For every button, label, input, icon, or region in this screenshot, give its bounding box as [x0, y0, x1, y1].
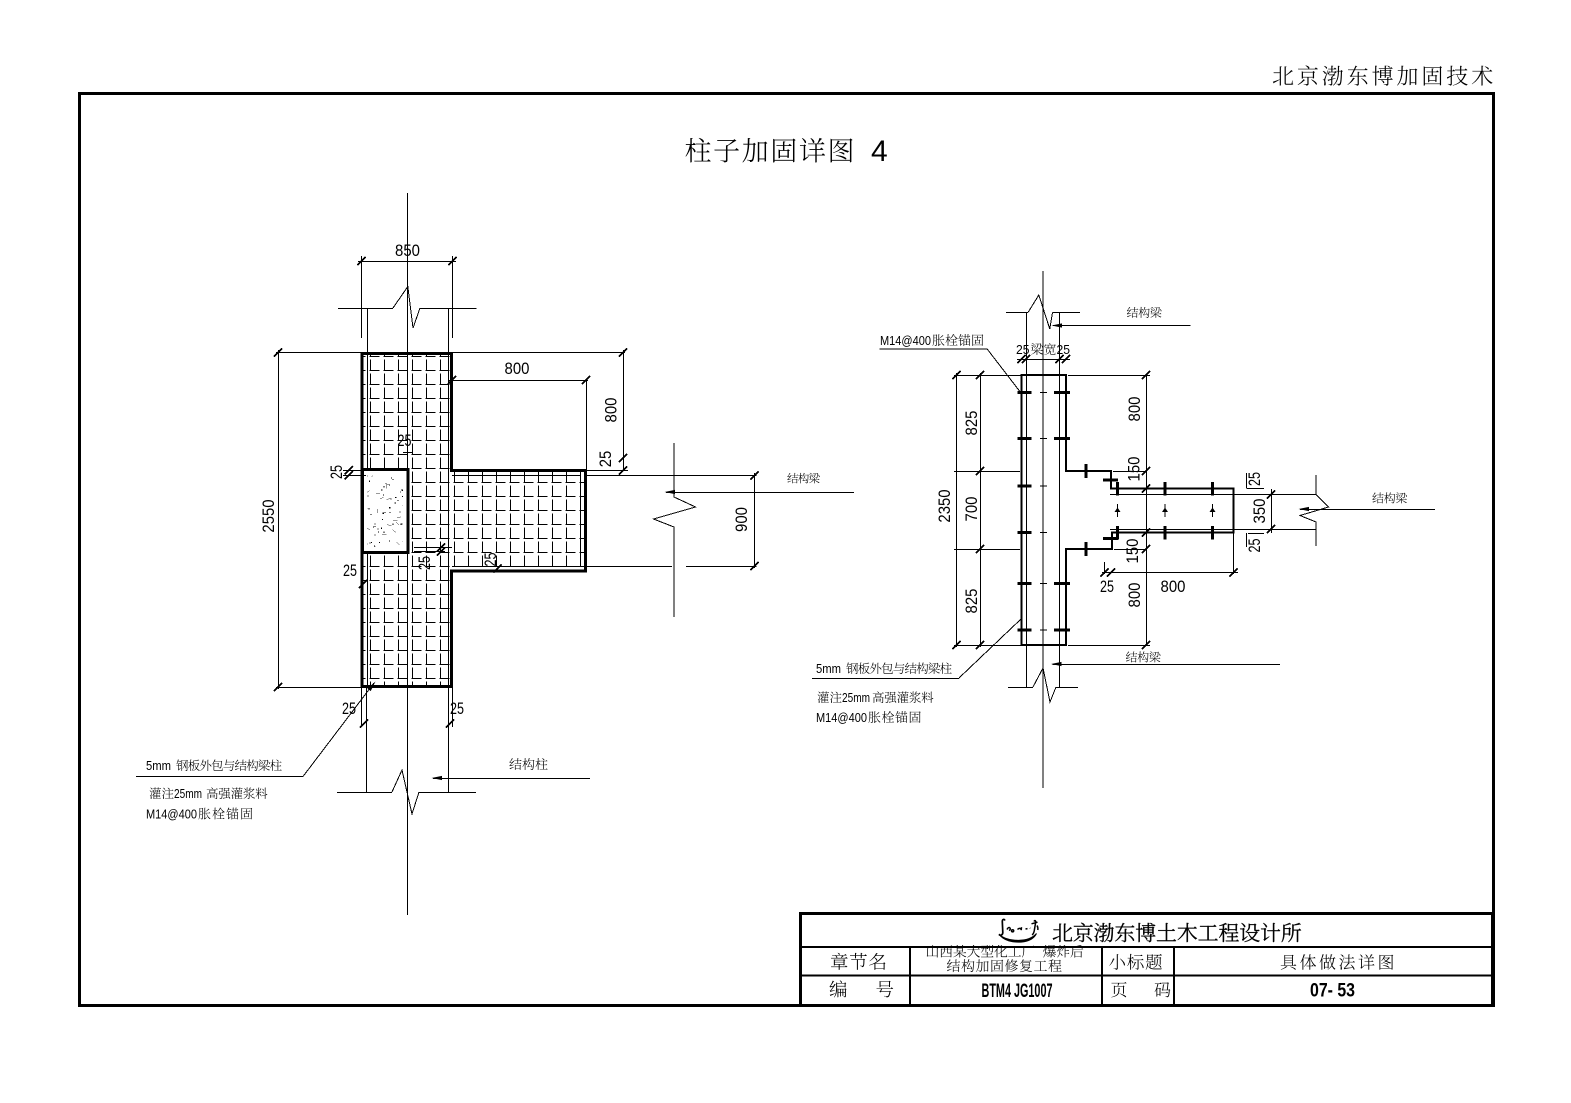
svg-text:700: 700: [962, 497, 981, 522]
svg-text:2550: 2550: [259, 499, 278, 532]
svg-text:25: 25: [481, 553, 500, 567]
svg-text:25: 25: [327, 465, 346, 479]
svg-text:25: 25: [343, 561, 357, 580]
svg-text:800: 800: [1125, 397, 1144, 422]
svg-text:25: 25: [1100, 577, 1114, 596]
svg-text:M14@400: M14@400: [146, 807, 197, 822]
svg-text:150: 150: [1125, 457, 1144, 482]
svg-text:25: 25: [1016, 342, 1030, 357]
svg-text:M14@400: M14@400: [816, 710, 867, 725]
svg-text:07- 53: 07- 53: [1310, 981, 1355, 1002]
svg-text:25mm: 25mm: [174, 786, 202, 801]
svg-text:25: 25: [398, 431, 412, 450]
svg-text:800: 800: [602, 398, 621, 423]
svg-text:25mm: 25mm: [842, 690, 870, 705]
svg-text:4: 4: [871, 135, 888, 168]
svg-text:800: 800: [505, 359, 530, 378]
svg-text:25: 25: [1245, 472, 1264, 486]
svg-text:850: 850: [395, 241, 420, 260]
svg-text:5mm: 5mm: [146, 758, 171, 773]
svg-text:800: 800: [1125, 583, 1144, 608]
svg-text:25: 25: [1245, 539, 1264, 553]
svg-text:25: 25: [596, 451, 615, 468]
svg-text:25: 25: [415, 556, 434, 570]
svg-text:BTM4 JG1007: BTM4 JG1007: [982, 981, 1053, 1002]
svg-text:M14@400: M14@400: [880, 333, 931, 348]
svg-text:800: 800: [1161, 577, 1186, 596]
svg-text:900: 900: [732, 507, 751, 532]
svg-text:825: 825: [962, 411, 981, 436]
svg-text:2350: 2350: [935, 489, 954, 522]
svg-text:25: 25: [450, 699, 464, 718]
svg-text:5mm: 5mm: [816, 661, 841, 676]
svg-text:350: 350: [1250, 499, 1269, 524]
svg-text:150: 150: [1123, 539, 1142, 564]
svg-text:825: 825: [962, 589, 981, 614]
